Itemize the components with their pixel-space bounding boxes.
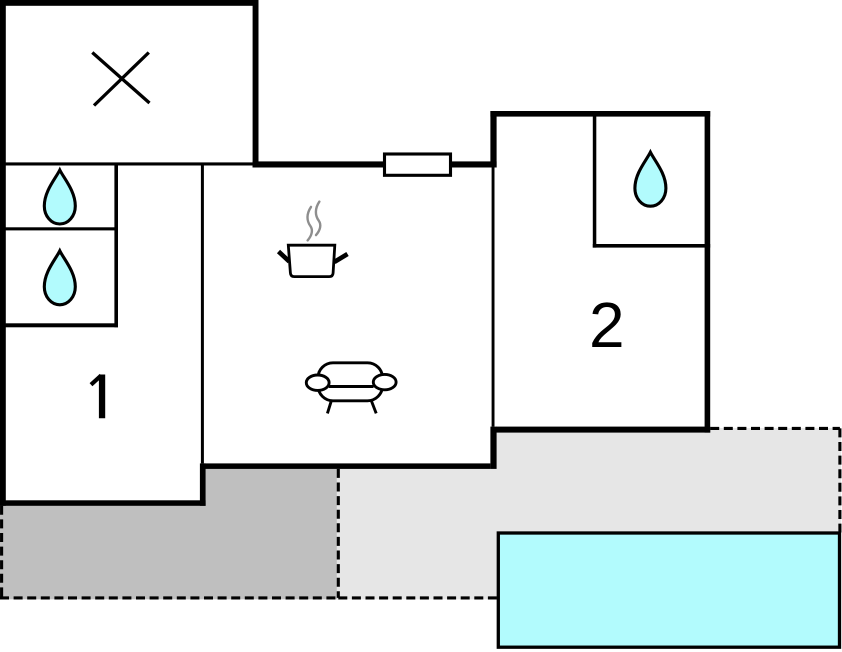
svg-text:2: 2 [589, 289, 625, 361]
